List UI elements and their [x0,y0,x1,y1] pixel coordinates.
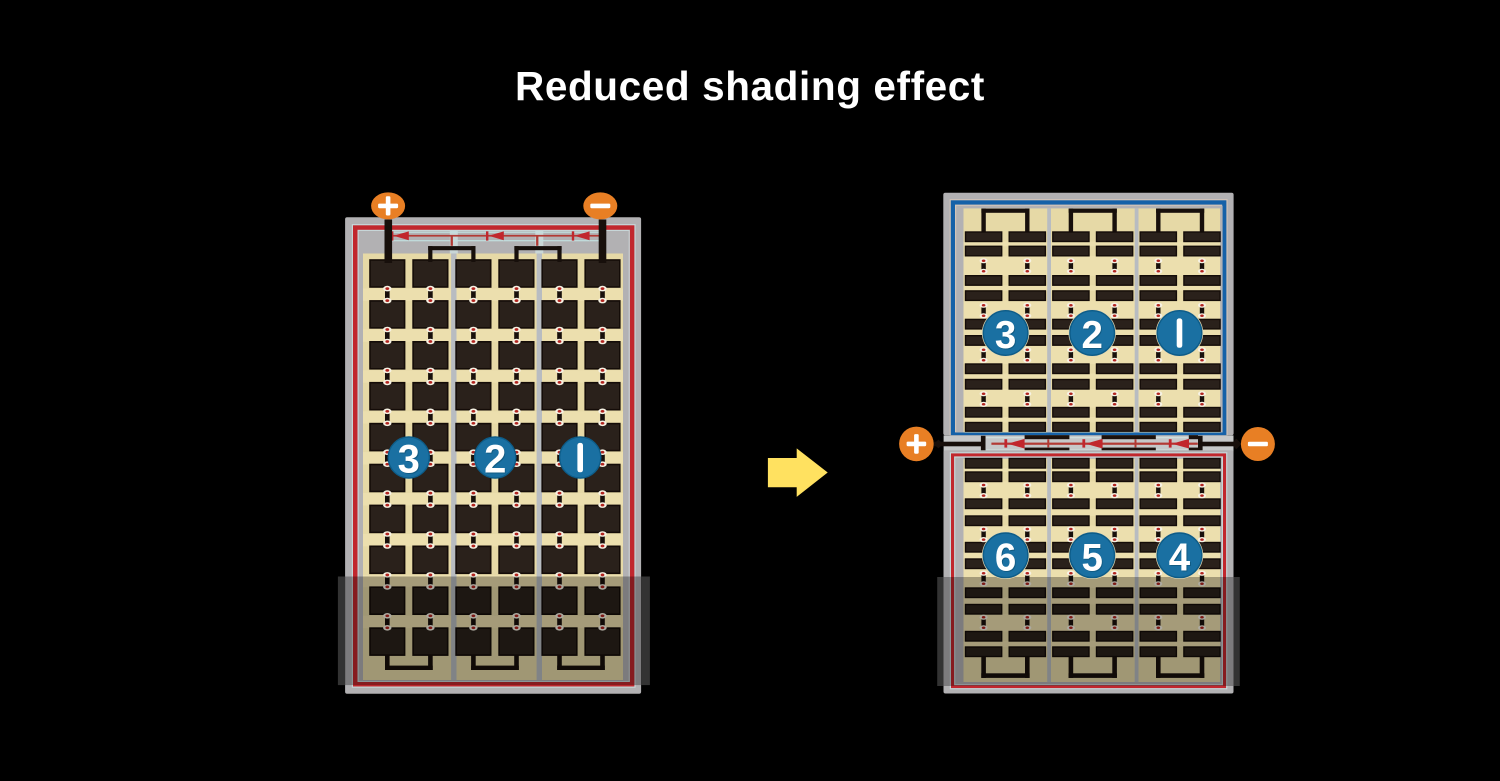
svg-text:6: 6 [995,536,1016,579]
svg-text:4: 4 [1169,536,1191,579]
svg-text:2: 2 [484,438,506,482]
svg-text:Reduced shading effect: Reduced shading effect [515,63,985,109]
svg-text:5: 5 [1081,536,1102,579]
svg-text:3: 3 [398,438,420,482]
svg-text:2: 2 [1081,314,1102,357]
svg-text:3: 3 [995,314,1016,357]
